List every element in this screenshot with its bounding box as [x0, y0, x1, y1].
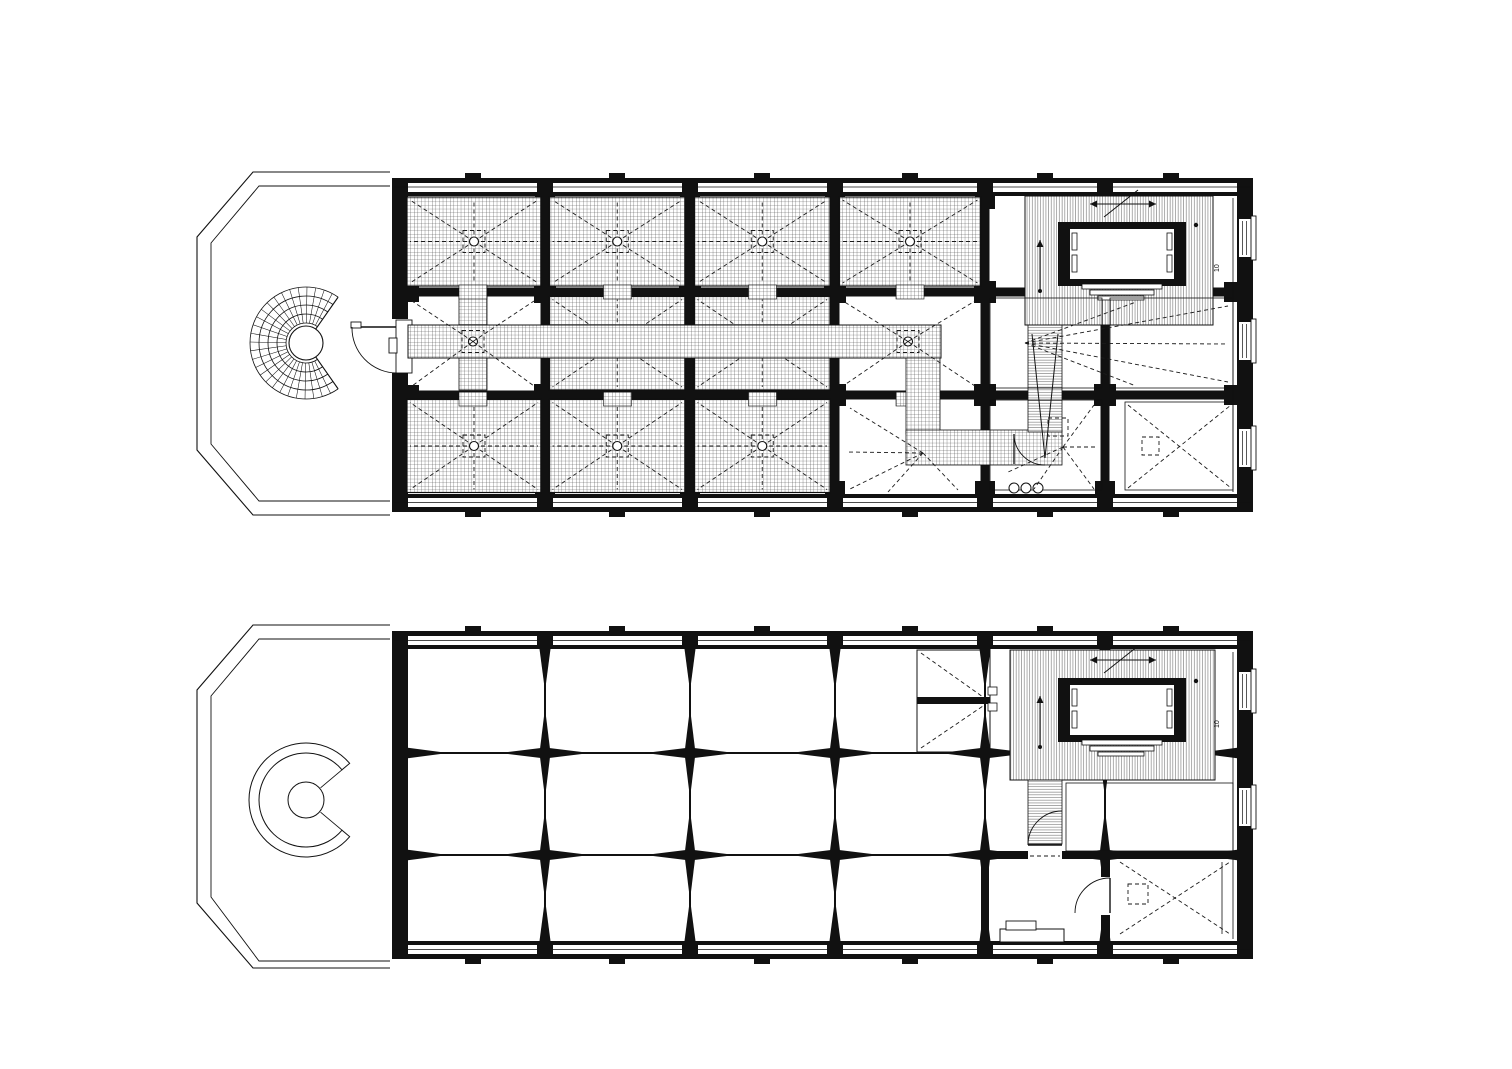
svg-text:10: 10: [1214, 720, 1221, 728]
floorplans-drawing: 1010: [0, 0, 1512, 1069]
drawing-sheet: 1st FLOOR / path through the grain bins,…: [0, 0, 1512, 1069]
svg-text:10: 10: [1214, 264, 1221, 272]
